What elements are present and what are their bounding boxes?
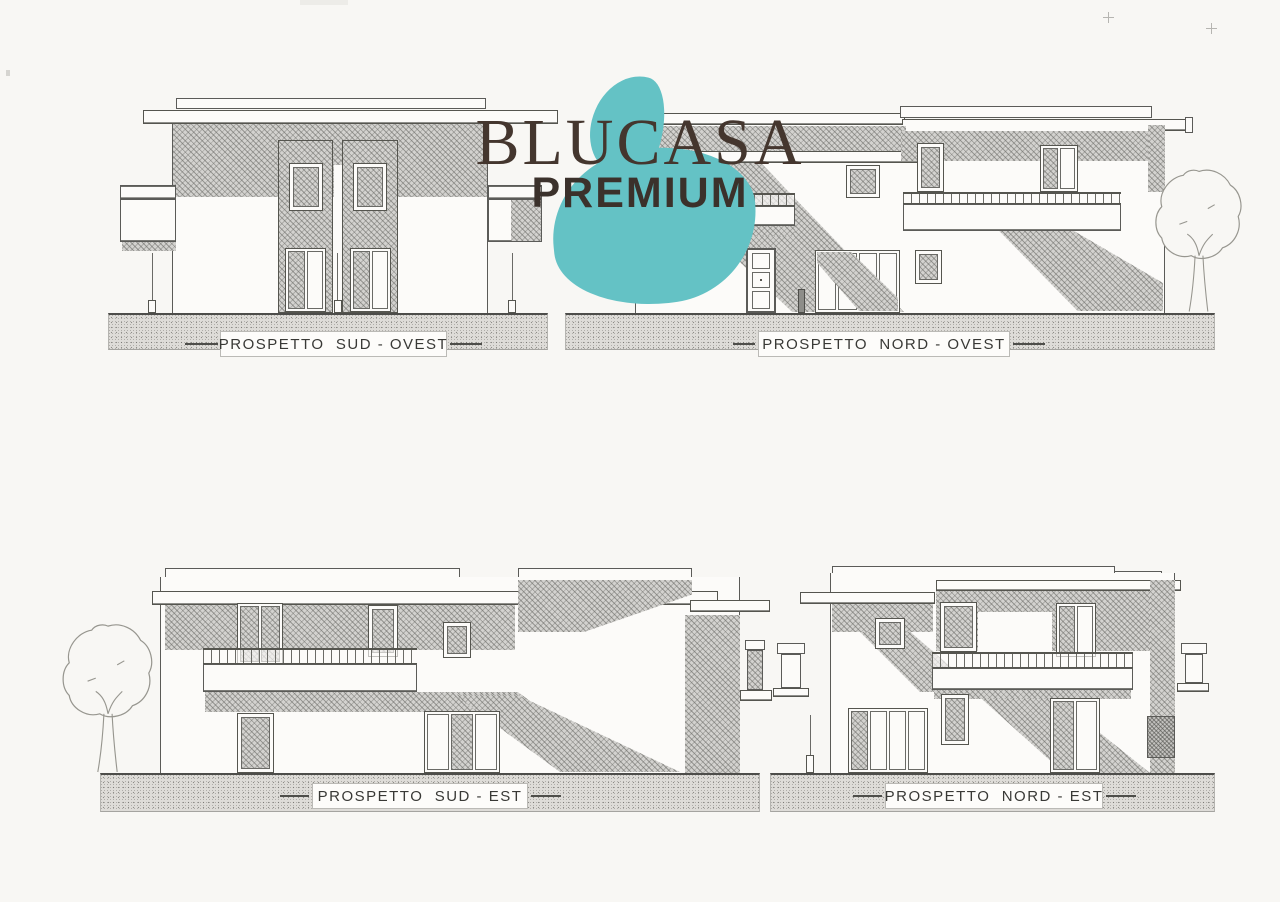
service-hatch-box [1147, 716, 1175, 758]
gap-post [337, 253, 338, 300]
door-leaf [1076, 701, 1097, 770]
roof-step-right [690, 600, 770, 612]
balcony-railing [932, 652, 1133, 668]
caption-text: PROSPETTO SUD - EST [318, 788, 523, 805]
balcony-slab [203, 664, 417, 692]
caption-rule-right [1013, 343, 1045, 345]
caption-text: PROSPETTO NORD - OVEST [762, 336, 1005, 353]
window-glass [447, 626, 467, 654]
glazed-door-4leaf [848, 708, 928, 773]
entry-balcony-shadow [732, 226, 795, 236]
lower-window [915, 250, 942, 284]
door-leaf [870, 711, 887, 770]
crop-mark-v [1108, 12, 1109, 23]
door-leaf [851, 711, 868, 770]
window-glass [921, 147, 940, 188]
entrance-door [746, 248, 776, 313]
loggia-double-door [1040, 145, 1078, 192]
lamp-post [810, 715, 811, 755]
balcony-right-slab [488, 199, 542, 242]
window-glass [372, 609, 394, 653]
scan-smudge [300, 0, 348, 5]
tower-left-lower-door [285, 248, 326, 312]
upper-small-window [443, 622, 471, 658]
loggia-tall-window [917, 143, 944, 192]
door-panel [752, 253, 770, 269]
lamp-post [152, 253, 153, 300]
loggia-recess [978, 612, 1052, 651]
elevation-sud-est: PROSPETTO SUD - EST [55, 555, 775, 825]
vent-cap [1181, 643, 1207, 654]
lamp-post-base [806, 755, 814, 773]
elevation-nord-ovest: PROSPETTO NORD - OVEST [565, 93, 1255, 361]
bollard [798, 289, 805, 313]
elevation-caption: PROSPETTO NORD - OVEST [758, 331, 1010, 357]
window-glass [293, 167, 319, 207]
door-leaf [288, 251, 305, 309]
balcony-right-railing [488, 185, 542, 199]
entry-balcony-slab [730, 206, 795, 226]
door-leaf [1053, 701, 1074, 770]
side-tower-shadow [685, 615, 740, 773]
door-leaf [451, 714, 473, 770]
elevation-sud-ovest: PROSPETTO SUD - OVEST [100, 93, 560, 361]
vent-cap [777, 643, 805, 654]
tree [1150, 165, 1248, 313]
caption-rule-left [853, 795, 882, 797]
caption-rule-left [280, 795, 309, 797]
tower-right-upper-window [353, 163, 387, 211]
door-leaf [1059, 606, 1075, 654]
door-panel [752, 291, 770, 309]
caption-rule-right [531, 795, 561, 797]
long-balcony-railing [903, 192, 1121, 204]
tower-right [342, 140, 398, 313]
scan-speck [6, 70, 10, 76]
door-leaf [475, 714, 497, 770]
door-glass [241, 717, 270, 769]
roof-parapet [176, 98, 486, 109]
lower-small-window [941, 694, 969, 745]
loggia-recess [917, 161, 1147, 192]
caption-rule-right [1106, 795, 1136, 797]
balcony-slab [932, 668, 1133, 690]
roof-slab [143, 110, 558, 124]
lower-double-door [1050, 698, 1100, 773]
entry-balcony-railing [730, 193, 795, 206]
roof-end-cap [1185, 117, 1193, 133]
balcony-left-slab [120, 199, 176, 242]
caption-text: PROSPETTO NORD - EST [885, 788, 1104, 805]
caption-rule-right [450, 343, 482, 345]
elevation-nord-est: PROSPETTO NORD - EST [765, 555, 1225, 825]
door-leaf [1043, 148, 1058, 189]
door-leaf [889, 711, 906, 770]
tower-left [278, 140, 333, 313]
door-leaf [1077, 606, 1093, 654]
door-leaf [353, 251, 370, 309]
crop-mark-v [1211, 23, 1212, 34]
elevation-caption: PROSPETTO SUD - OVEST [220, 331, 447, 357]
caption-rule-left [185, 343, 218, 345]
gap-post-base [334, 300, 342, 313]
upper-small-window [875, 618, 905, 649]
vent-cap [745, 640, 765, 650]
scanned-elevation-sheet: { "logo": { "name": "BLUCASA", "tier": "… [0, 0, 1280, 902]
balcony-left-railing [120, 185, 176, 199]
vent-body [781, 654, 801, 688]
roof-parapet-right [900, 106, 1152, 118]
door-handle-dot [760, 279, 762, 281]
window-glass [850, 169, 876, 194]
roof-slab-left [628, 113, 905, 125]
upper-window [846, 165, 880, 198]
window-glass [357, 167, 383, 207]
balcony-right-inner-shadow [511, 200, 541, 241]
lamp-post-base [148, 300, 156, 313]
lamp-post-base [508, 300, 516, 313]
upper-double-door [1056, 603, 1096, 657]
door-leaf [427, 714, 449, 770]
window-glass [944, 606, 973, 648]
lower-door [237, 713, 274, 773]
lamp-post [512, 253, 513, 300]
vent-ledge [1177, 683, 1209, 692]
tower-left-upper-window [289, 163, 323, 211]
roof-fascia-right [936, 580, 1181, 591]
vent-ledge [773, 688, 809, 697]
balcony-railing [203, 648, 417, 664]
vent-body [1185, 654, 1203, 683]
caption-text: PROSPETTO SUD - OVEST [219, 336, 448, 353]
canopy-left [800, 592, 935, 604]
door-leaf [372, 251, 389, 309]
window-glass [945, 698, 965, 741]
elevation-caption: PROSPETTO SUD - EST [312, 783, 528, 809]
door-leaf [908, 711, 925, 770]
glazed-door-3leaf [424, 711, 500, 773]
elevation-caption: PROSPETTO NORD - EST [885, 783, 1103, 809]
caption-rule-left [733, 343, 755, 345]
door-leaf [1060, 148, 1075, 189]
upper-tall-window [940, 602, 977, 652]
window-glass [919, 254, 938, 280]
vent-body [747, 650, 763, 690]
window-glass [879, 622, 901, 645]
tower-right-lower-door [350, 248, 391, 312]
tree [57, 618, 159, 775]
door-leaf [307, 251, 324, 309]
balcony-left-shadow [122, 242, 176, 251]
long-balcony-slab [903, 204, 1121, 231]
